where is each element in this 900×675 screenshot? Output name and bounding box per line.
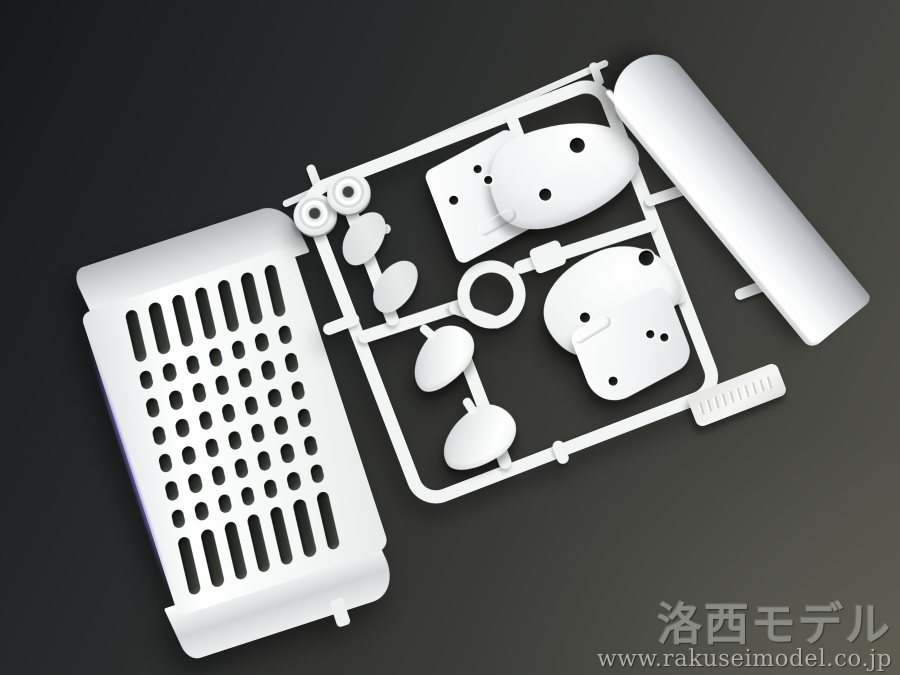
grille-slot	[280, 442, 296, 464]
grille-slot	[223, 520, 248, 581]
grille-slot	[181, 445, 197, 467]
grille-slot	[214, 374, 230, 396]
grille-slot	[194, 286, 217, 341]
grille-slot	[227, 430, 243, 452]
grille-slot	[296, 407, 312, 429]
grille-slot	[316, 490, 341, 551]
grille-slot	[210, 465, 226, 487]
grille-slot	[221, 402, 237, 424]
grille-slot	[240, 485, 256, 507]
grille-slot	[250, 422, 266, 444]
grille-slot	[200, 528, 225, 589]
grille-slot	[284, 352, 300, 374]
grille-slot	[263, 478, 279, 500]
grille-slot	[273, 415, 289, 437]
grille-slot	[158, 452, 174, 474]
grille-slot	[233, 457, 249, 479]
grille-slot	[164, 480, 180, 502]
grille-slot	[151, 425, 167, 447]
grille-slot	[237, 367, 253, 389]
grille-slot	[257, 450, 273, 472]
grille-slot	[217, 493, 233, 515]
grille-slot	[171, 508, 187, 530]
grille-slot	[187, 472, 203, 494]
grille-slot	[254, 332, 270, 354]
grille-slot	[263, 263, 286, 318]
watermark-url-text: www.rakuseimodel.co.jp	[597, 648, 892, 671]
watermark: 洛西モデル www.rakuseimodel.co.jp	[597, 602, 892, 671]
grille-slot	[204, 437, 220, 459]
grille-slot	[139, 369, 155, 391]
grille-slot	[240, 271, 263, 326]
grille-slot	[168, 389, 184, 411]
grille-slot	[198, 410, 214, 432]
grille-slot	[269, 505, 294, 566]
grille-slot	[277, 324, 293, 346]
grille-slot	[286, 470, 302, 492]
grille-slot	[309, 463, 325, 485]
grille-slot	[303, 435, 319, 457]
grille-slot	[246, 513, 271, 574]
grille-slot	[290, 380, 306, 402]
grille-slot	[194, 500, 210, 522]
grille-slot	[171, 294, 194, 349]
grille-slot	[145, 397, 161, 419]
grille-slot	[125, 309, 148, 364]
grille-slot	[244, 395, 260, 417]
grille-slot	[267, 387, 283, 409]
grille-slot	[217, 278, 240, 333]
photo-scene: 洛西モデル www.rakuseimodel.co.jp	[0, 0, 900, 675]
grille-slot	[292, 498, 317, 559]
grille-slot	[148, 301, 171, 356]
grille-slot	[191, 382, 207, 404]
grille-slot	[185, 354, 201, 376]
grille-slot	[174, 417, 190, 439]
grille-slot	[162, 362, 178, 384]
grille-slot	[231, 339, 247, 361]
grille-slot	[208, 347, 224, 369]
grille-slot	[177, 535, 202, 596]
grille-slot	[260, 359, 276, 381]
watermark-brand-text: 洛西モデル	[597, 602, 892, 647]
